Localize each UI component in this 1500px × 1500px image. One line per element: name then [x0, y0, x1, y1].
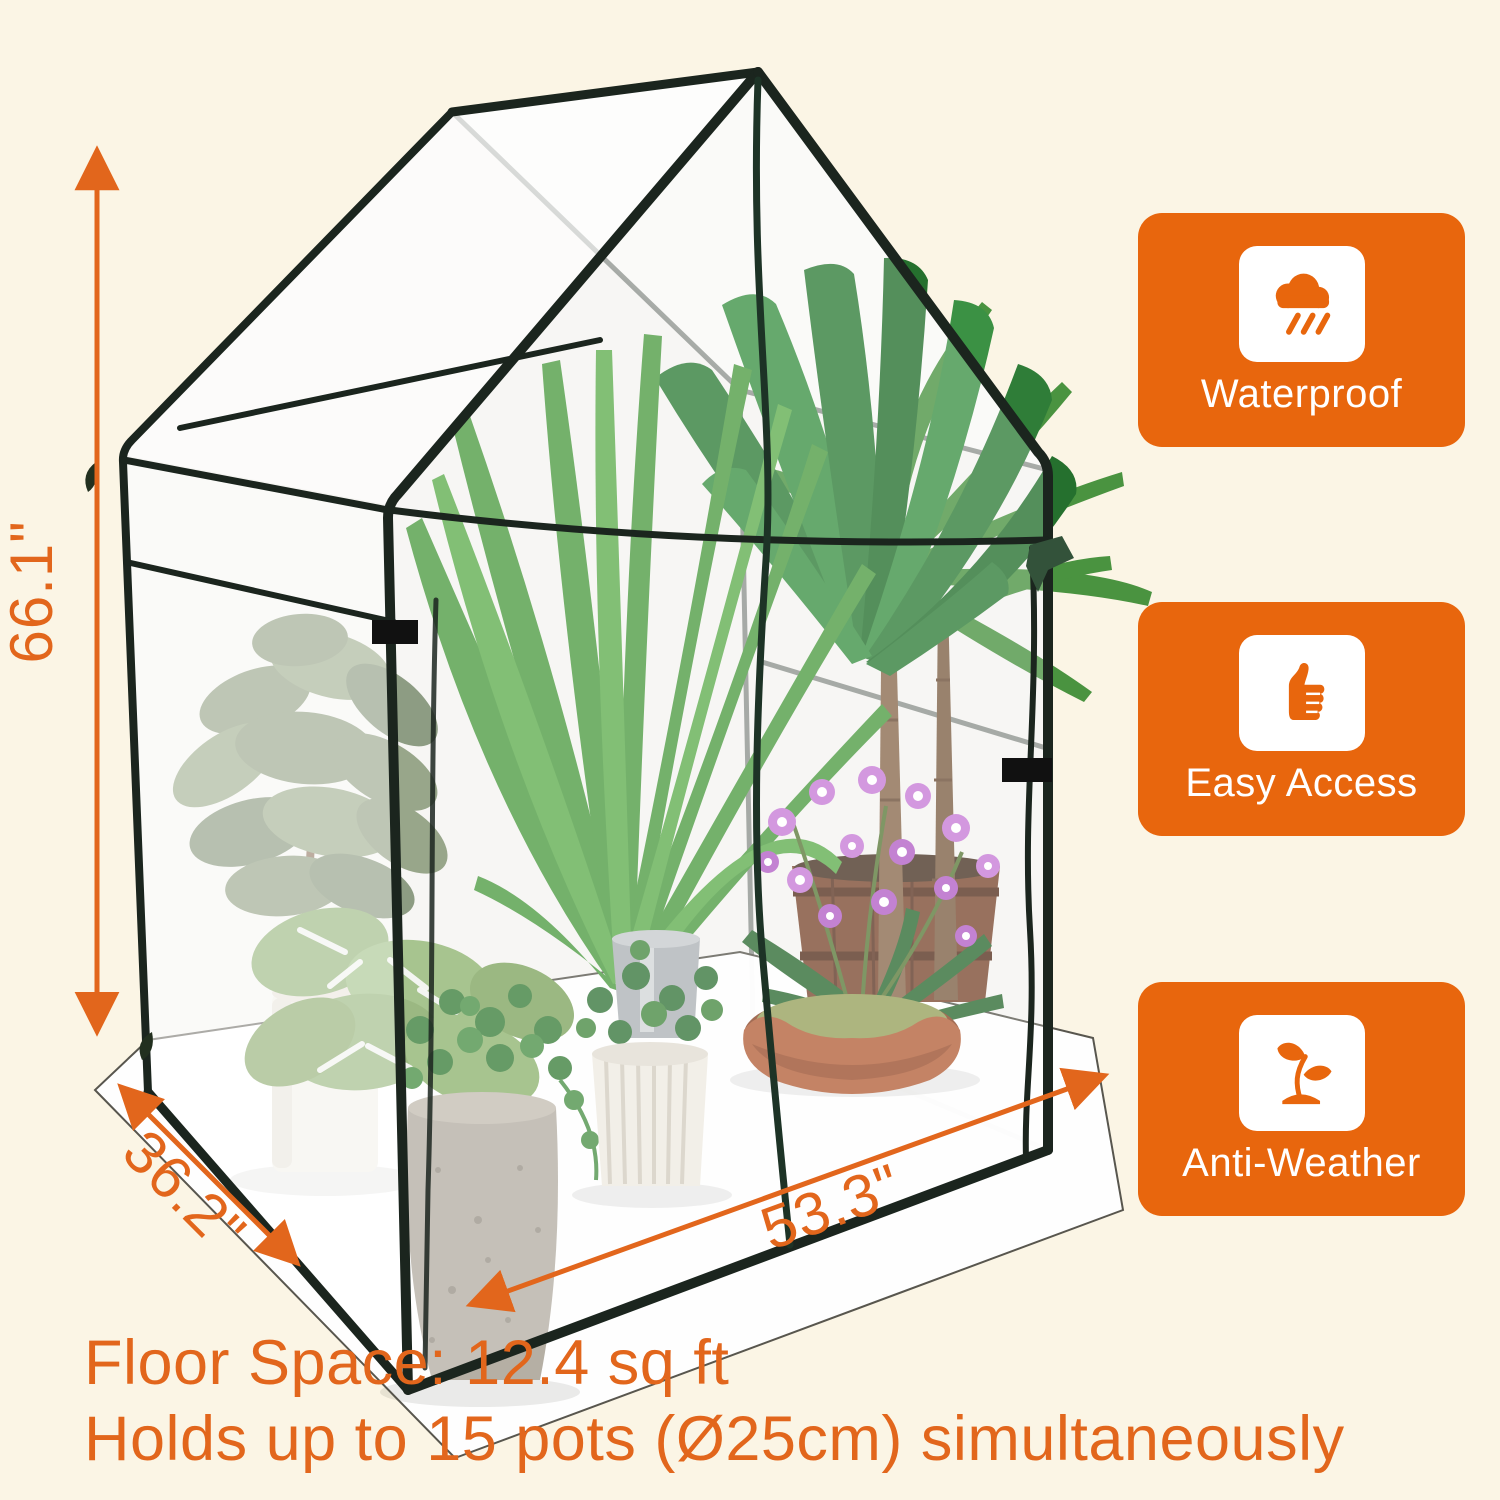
height-dimension-label: 66.1" [0, 520, 65, 663]
feature-label: Anti-Weather [1182, 1143, 1421, 1183]
floor-space-text: Floor Space: 12.4 sq ft [84, 1326, 1345, 1402]
feature-badge-easy-access: Easy Access [1138, 602, 1465, 836]
icon-tile [1239, 246, 1365, 362]
feature-label: Easy Access [1185, 763, 1417, 803]
footer-specs: Floor Space: 12.4 sq ft Holds up to 15 p… [84, 1326, 1345, 1477]
capacity-text: Holds up to 15 pots (Ø25cm) simultaneous… [84, 1402, 1345, 1478]
product-infographic: 66.1" 36.2" 53.3" Waterproof [0, 0, 1500, 1500]
feature-badge-waterproof: Waterproof [1138, 213, 1465, 447]
icon-tile [1239, 635, 1365, 751]
thumbs-up-icon [1258, 652, 1346, 734]
feature-badge-anti-weather: Anti-Weather [1138, 982, 1465, 1216]
rain-cloud-icon [1258, 263, 1346, 345]
icon-tile [1239, 1015, 1365, 1131]
feature-label: Waterproof [1201, 374, 1402, 414]
sprout-icon [1258, 1032, 1346, 1114]
